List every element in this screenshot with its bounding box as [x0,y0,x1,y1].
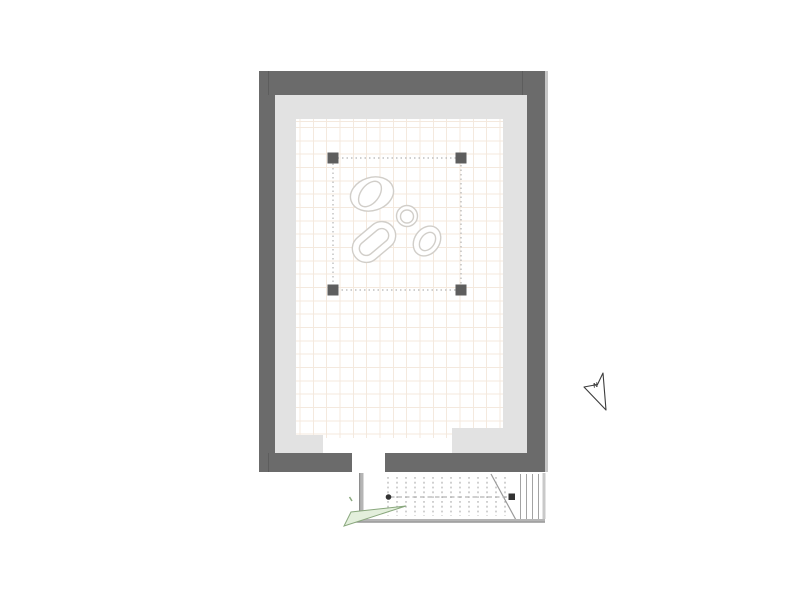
north-arrow-shape [584,373,606,410]
stair-treads-solid [521,474,539,519]
plan-overlay: N [0,0,800,600]
door-hinge-mark [350,497,353,501]
stair-bottom-line-edge [352,522,545,523]
selection-handle-bottom-right[interactable] [456,285,467,296]
stair-walk-start-dot [386,494,392,500]
selection-box[interactable] [328,153,467,296]
north-arrow-icon: N [584,373,606,410]
stone-2-inner [401,210,414,223]
floor-plan-canvas: N [0,0,800,600]
selection-handle-top-left[interactable] [328,153,339,164]
selection-border[interactable] [333,158,461,290]
stone-group[interactable] [346,172,446,269]
stair-walk-end-marker [509,494,516,501]
selection-handle-bottom-left[interactable] [328,285,339,296]
selection-handle-top-right[interactable] [456,153,467,164]
stair-right-edge [543,473,546,519]
staircase [352,473,546,523]
